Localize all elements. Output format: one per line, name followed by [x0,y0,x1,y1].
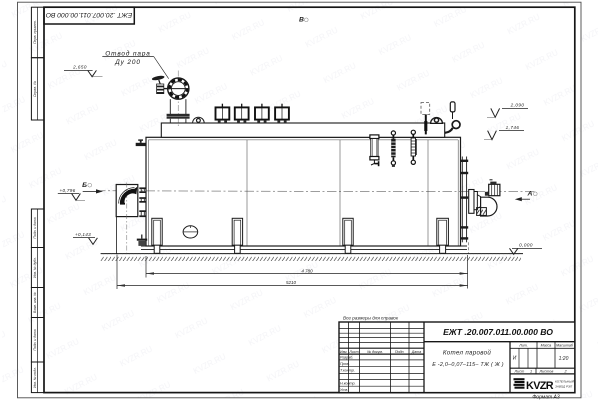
svg-text:Формат А3: Формат А3 [532,394,560,400]
svg-text:Отвод пара: Отвод пара [105,49,151,57]
svg-text:ЕЖТ .20.007.011.00.000 ВО: ЕЖТ .20.007.011.00.000 ВО [45,11,132,18]
svg-text:0,000: 0,000 [519,243,533,248]
svg-text:Справ. №: Справ. № [33,81,37,97]
svg-text:+0,143: +0,143 [75,232,91,237]
svg-text:№ докум.: № докум. [367,350,383,354]
svg-text:Н.контр.: Н.контр. [340,381,356,385]
svg-text:ЗАВОД РЭП: ЗАВОД РЭП [555,385,573,389]
svg-text:5210: 5210 [286,280,297,285]
svg-text:1: 1 [530,370,532,374]
svg-text:Е -2,0–0,07–115– ТЖ ( Ж ): Е -2,0–0,07–115– ТЖ ( Ж ) [432,362,504,368]
svg-text:Б: Б [82,182,87,189]
svg-text:Котел паровой: Котел паровой [443,350,492,357]
svg-text:Разраб.: Разраб. [340,356,353,360]
svg-text:Пров.: Пров. [340,362,350,366]
svg-text:Ду 200: Ду 200 [114,59,141,66]
svg-text:КОТЕЛЬНЫЙ: КОТЕЛЬНЫЙ [555,380,575,384]
svg-text:Подп. и дата: Подп. и дата [33,329,37,350]
svg-text:2,090: 2,090 [510,103,525,108]
svg-text:Инв. № дубл.: Инв. № дубл. [33,257,37,278]
svg-text:Подп.: Подп. [395,350,405,354]
svg-text:Все размеры для справок: Все размеры для справок [343,316,399,321]
svg-text:2,650: 2,650 [72,65,87,70]
svg-text:Масштаб: Масштаб [556,344,574,348]
svg-text:Взам. инв. №: Взам. инв. № [33,292,37,313]
svg-text:Дата: Дата [411,350,421,354]
svg-text:1:20: 1:20 [559,356,569,362]
svg-text:Перв. примен.: Перв. примен. [33,20,37,44]
svg-text:1,746: 1,746 [506,125,520,130]
svg-text:В: В [299,16,304,23]
svg-text:4 780: 4 780 [301,268,313,273]
svg-text:Лист: Лист [514,370,525,374]
svg-text:А: А [527,190,533,197]
svg-text:Утв.: Утв. [340,388,348,392]
svg-text:ЕЖТ .20.007.011.00.000 ВО: ЕЖТ .20.007.011.00.000 ВО [443,327,553,337]
svg-text:Лит.: Лит. [518,344,527,348]
svg-text:Подп. и дата: Подп. и дата [33,217,37,238]
svg-text:Лист: Лист [348,350,358,354]
svg-text:Изм.: Изм. [340,350,348,354]
svg-text:Инв. № подл.: Инв. № подл. [33,367,37,388]
svg-text:+0,796: +0,796 [60,188,76,193]
svg-text:Масса: Масса [541,344,552,348]
svg-text:Листов: Листов [539,370,554,374]
svg-text:И: И [513,356,517,362]
svg-text:KVZR: KVZR [526,380,554,392]
svg-text:Т.контр.: Т.контр. [340,369,355,373]
